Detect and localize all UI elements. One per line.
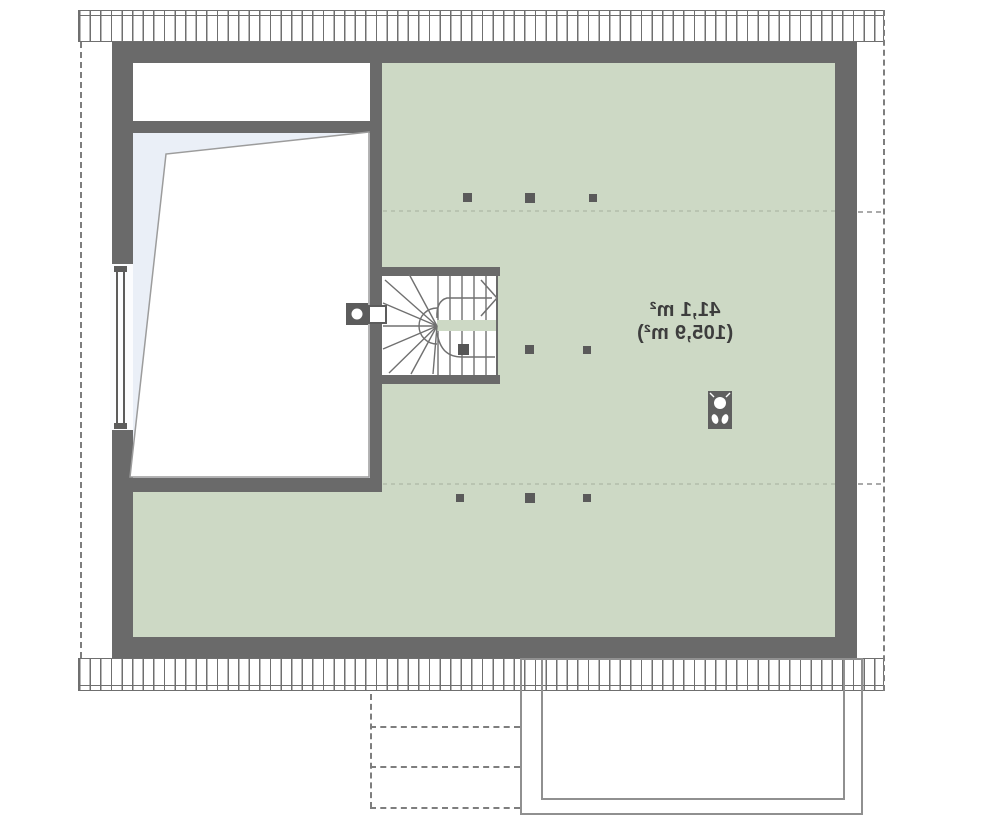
column-marker: [589, 194, 597, 202]
column-marker: [525, 193, 535, 203]
area-label-line1: 41,1 m²: [606, 299, 764, 322]
column-marker: [525, 345, 534, 354]
column-marker: [583, 346, 591, 354]
stair-wall-top: [378, 267, 500, 276]
stair-flight-gap: [437, 320, 497, 331]
chimney-icon: [708, 391, 732, 429]
plan-symbols-layer: [0, 0, 1000, 822]
attic-floor-plan: 41,1 m² (105,9 m²): [0, 0, 1000, 822]
staircase: [378, 267, 500, 384]
column-marker: [525, 493, 535, 503]
stair-post-marker: [458, 344, 469, 355]
area-label: 41,1 m² (105,9 m²): [606, 299, 764, 345]
column-marker: [583, 494, 591, 502]
column-marker: [463, 193, 472, 202]
stair-wall-bottom: [378, 375, 500, 384]
area-label-line2: (105,9 m²): [606, 322, 764, 345]
column-marker: [456, 494, 464, 502]
window-icon: [110, 264, 133, 430]
vent-icon: [346, 303, 386, 325]
door-leaf: [130, 132, 369, 477]
